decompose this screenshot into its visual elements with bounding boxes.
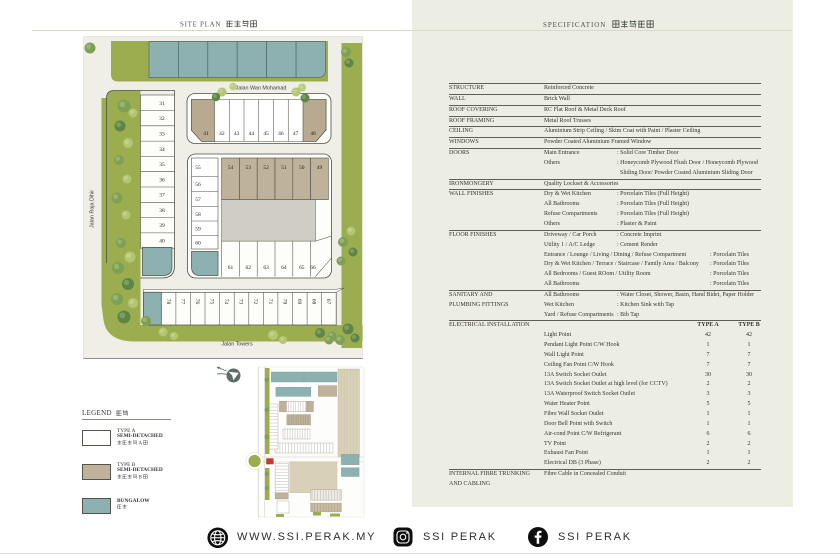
svg-text:Jalan Raja Dihir: Jalan Raja Dihir bbox=[90, 190, 96, 228]
svg-text:61: 61 bbox=[228, 265, 234, 271]
svg-text:57: 57 bbox=[195, 197, 201, 203]
svg-text:66: 66 bbox=[310, 265, 316, 271]
svg-text:39: 39 bbox=[159, 223, 165, 229]
svg-text:40: 40 bbox=[159, 239, 165, 245]
svg-text:33: 33 bbox=[159, 131, 165, 137]
svg-text:74: 74 bbox=[223, 299, 229, 305]
svg-text:38: 38 bbox=[159, 208, 165, 214]
svg-text:63: 63 bbox=[263, 265, 269, 271]
svg-text:70: 70 bbox=[281, 299, 287, 305]
svg-text:75: 75 bbox=[209, 299, 215, 305]
svg-text:69: 69 bbox=[296, 299, 302, 305]
svg-text:Jalan Wan Mohamad: Jalan Wan Mohamad bbox=[236, 86, 287, 92]
svg-text:53: 53 bbox=[246, 165, 252, 171]
svg-text:51: 51 bbox=[281, 165, 287, 171]
svg-text:37: 37 bbox=[159, 193, 165, 199]
svg-text:41: 41 bbox=[203, 131, 209, 137]
svg-text:35: 35 bbox=[159, 162, 165, 168]
svg-text:54: 54 bbox=[228, 165, 234, 171]
svg-text:77: 77 bbox=[179, 299, 185, 305]
svg-text:73: 73 bbox=[238, 299, 244, 305]
svg-text:42: 42 bbox=[219, 131, 225, 137]
svg-text:71: 71 bbox=[267, 299, 273, 305]
svg-text:34: 34 bbox=[159, 147, 165, 153]
svg-text:67: 67 bbox=[325, 299, 331, 305]
svg-text:56: 56 bbox=[195, 182, 201, 188]
svg-text:36: 36 bbox=[159, 177, 165, 183]
svg-text:59: 59 bbox=[195, 226, 201, 232]
svg-text:52: 52 bbox=[263, 165, 269, 171]
svg-text:64: 64 bbox=[281, 265, 287, 271]
svg-text:46: 46 bbox=[278, 131, 284, 137]
svg-text:Jalan Towers: Jalan Towers bbox=[221, 342, 253, 348]
svg-text:72: 72 bbox=[252, 299, 258, 305]
svg-text:50: 50 bbox=[299, 165, 305, 171]
svg-text:65: 65 bbox=[299, 265, 305, 271]
svg-text:60: 60 bbox=[195, 240, 201, 246]
svg-text:32: 32 bbox=[159, 116, 165, 122]
svg-text:44: 44 bbox=[249, 131, 255, 137]
svg-text:78: 78 bbox=[165, 299, 171, 305]
svg-text:31: 31 bbox=[159, 101, 165, 107]
svg-text:47: 47 bbox=[293, 131, 299, 137]
svg-text:49: 49 bbox=[317, 165, 323, 171]
svg-text:45: 45 bbox=[263, 131, 269, 137]
svg-text:58: 58 bbox=[195, 212, 201, 218]
svg-text:55: 55 bbox=[195, 165, 201, 171]
svg-text:43: 43 bbox=[234, 131, 240, 137]
svg-text:76: 76 bbox=[194, 299, 200, 305]
svg-text:62: 62 bbox=[246, 265, 252, 271]
svg-text:68: 68 bbox=[311, 299, 317, 305]
svg-text:48: 48 bbox=[310, 131, 316, 137]
